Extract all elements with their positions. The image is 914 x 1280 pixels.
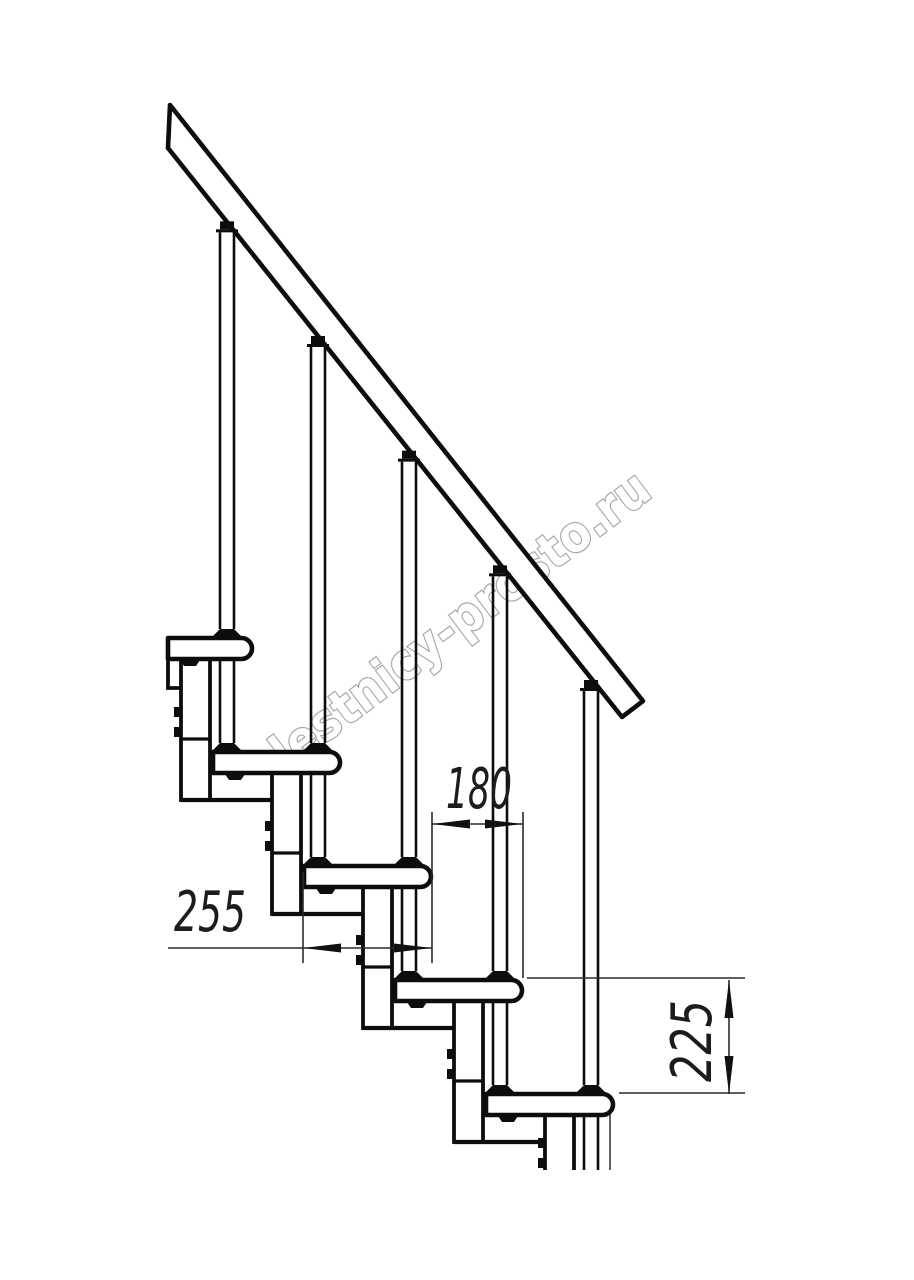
dim-label-255: 255 <box>174 880 246 945</box>
support-column-2 <box>265 773 363 914</box>
baluster-3 <box>393 451 425 980</box>
dimension-labels: 180 255 225 <box>174 757 725 1082</box>
baluster-1 <box>211 221 243 752</box>
arrow-225-down <box>725 1056 734 1094</box>
arrow-255-left <box>303 944 341 953</box>
staircase-technical-drawing: lestnicy-prosto.ru 180 255 225 <box>0 0 914 1280</box>
dim-label-225: 225 <box>660 1000 725 1082</box>
arrow-225-up <box>725 980 734 1018</box>
drawing-canvas: lestnicy-prosto.ru 180 255 225 <box>0 0 914 1280</box>
tread-5 <box>486 1094 613 1122</box>
baluster-2 <box>302 336 334 866</box>
support-column-3 <box>356 887 454 1028</box>
support-column-1 <box>174 659 272 800</box>
support-column-4 <box>447 1001 545 1142</box>
dim-label-180: 180 <box>446 757 512 822</box>
baluster-4 <box>484 565 516 1094</box>
top-tread-stub <box>168 659 181 688</box>
arrow-255-right <box>394 944 432 953</box>
support-column-5-cut <box>538 1115 574 1170</box>
